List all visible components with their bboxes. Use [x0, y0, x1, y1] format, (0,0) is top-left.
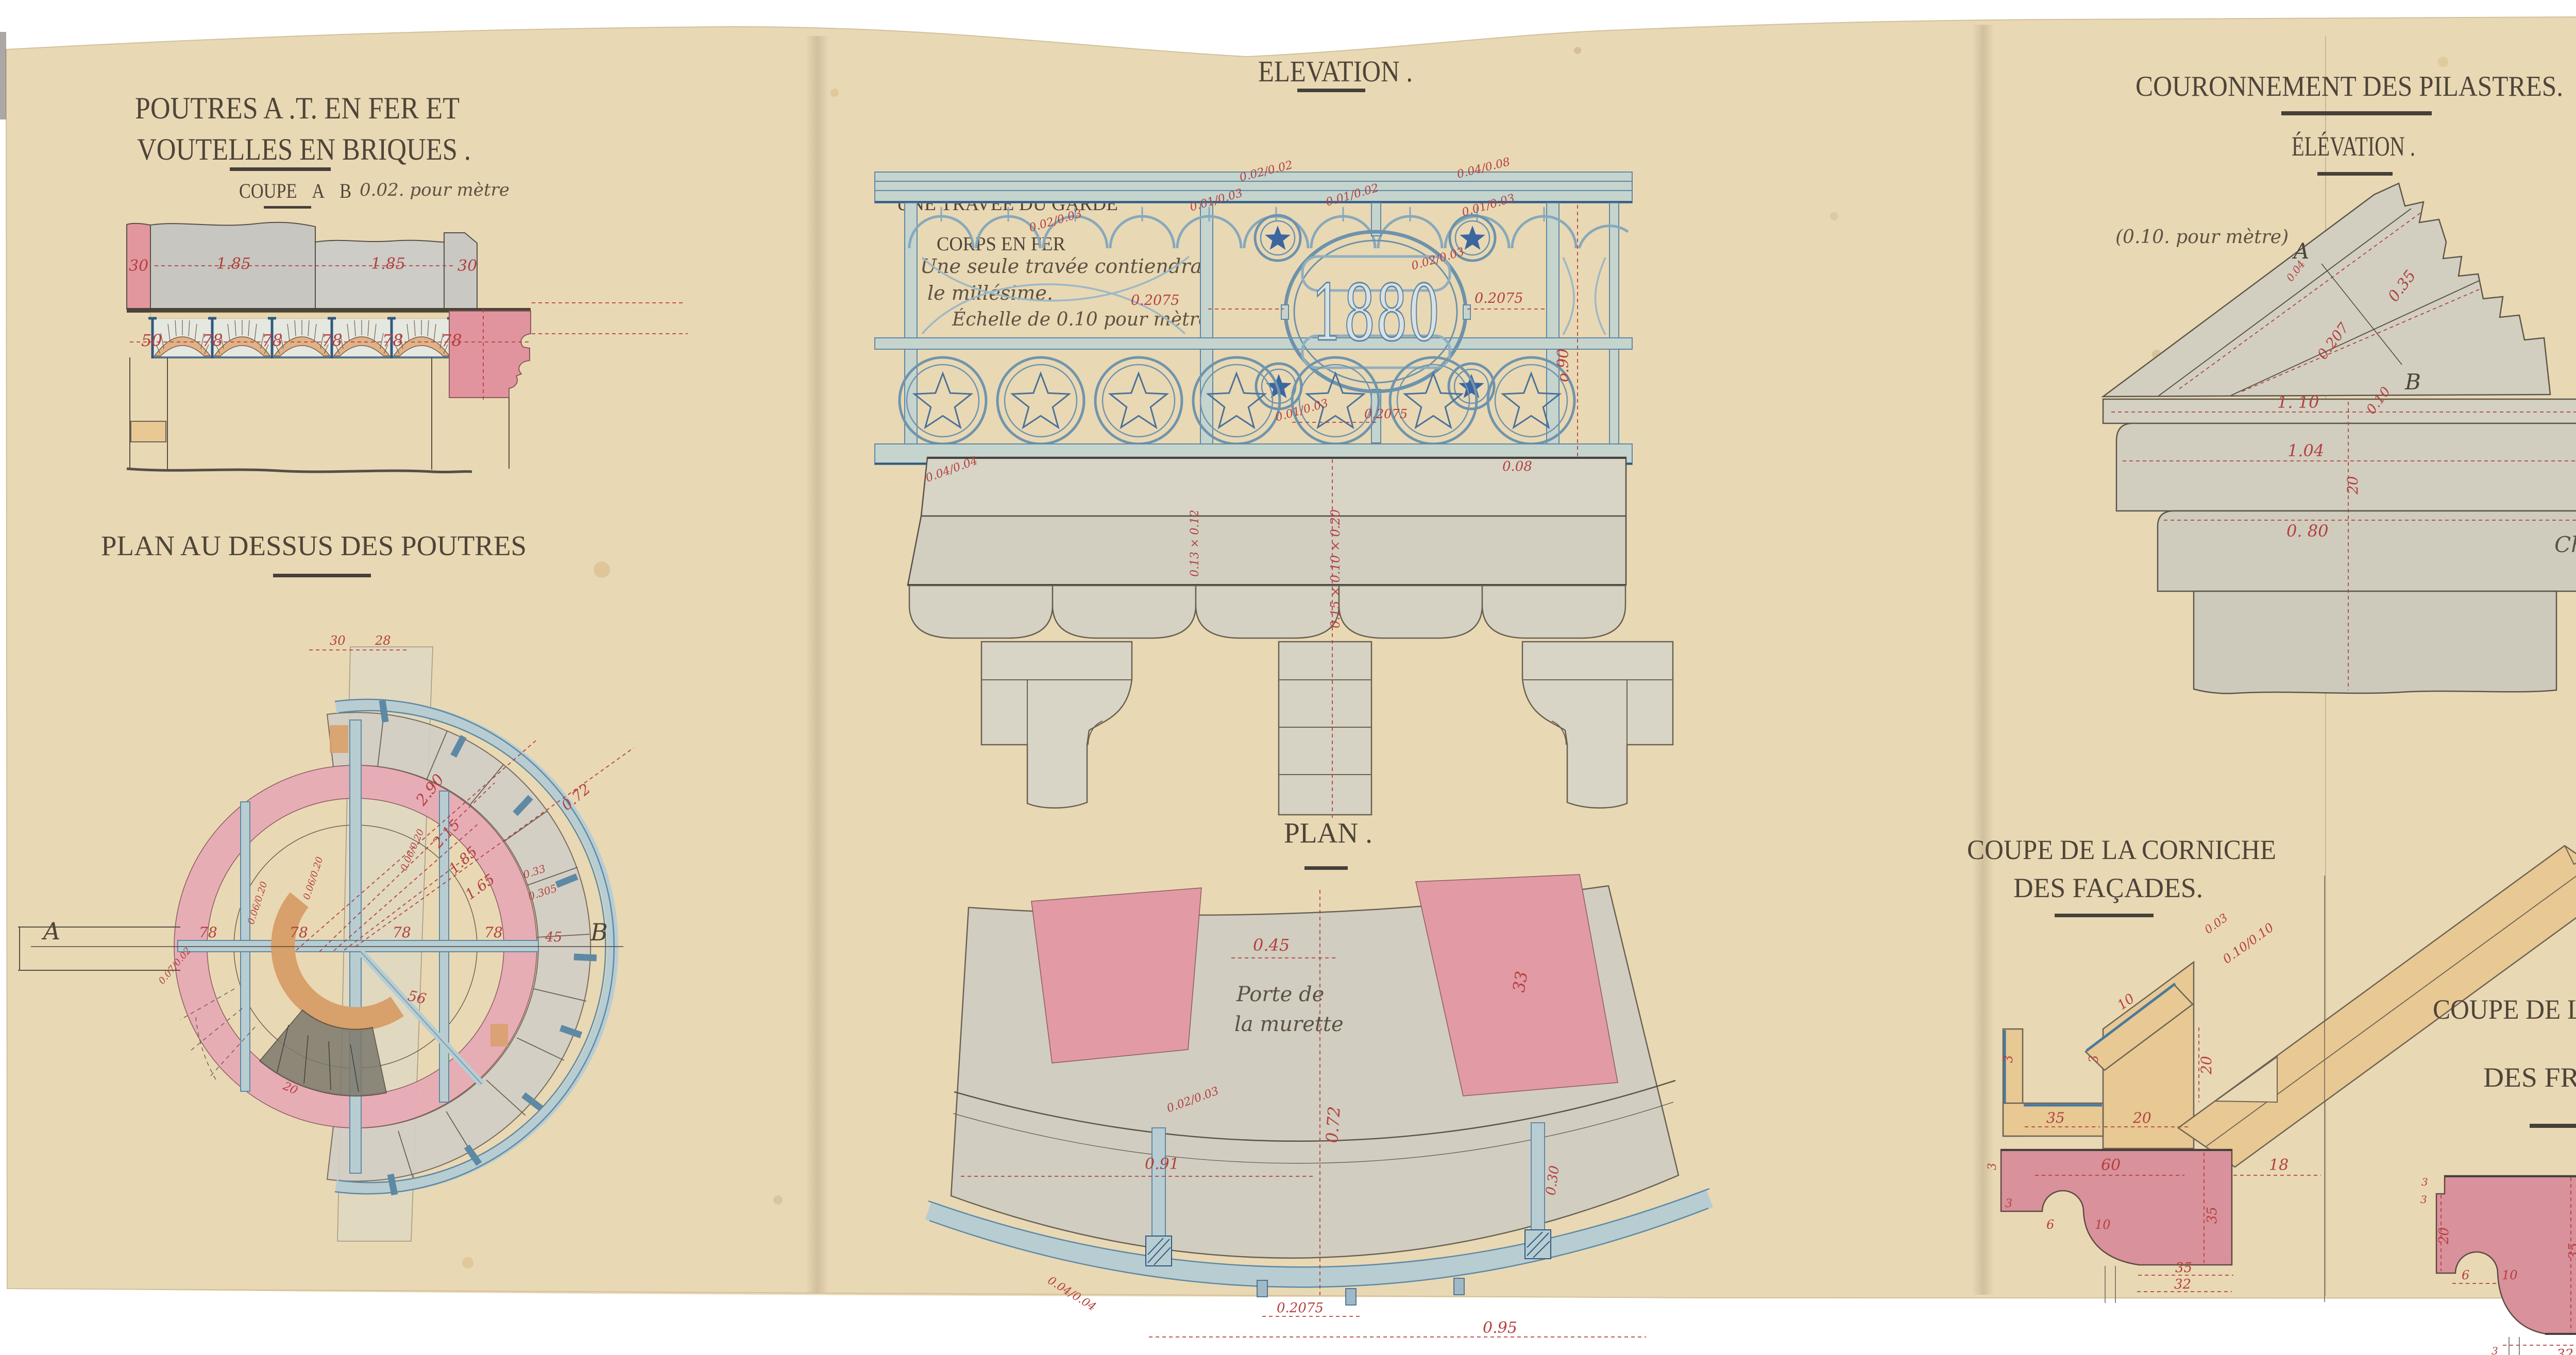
- dimension-label: 78: [441, 331, 462, 350]
- cap-band: [2103, 399, 2576, 423]
- dimension-label: 3: [1986, 1163, 1999, 1170]
- fold-crease: [805, 36, 829, 1293]
- dimension-label: 0.2075: [1475, 290, 1523, 306]
- frontons-title-line2: DES FRONTONS. A.B.: [2483, 1062, 2576, 1093]
- frontons-title-line1: COUPE DE LA CORNICHE: [2433, 994, 2576, 1025]
- title-underline: [2530, 1124, 2576, 1128]
- orange-block: [490, 1024, 508, 1047]
- cap-block: [2116, 423, 2576, 511]
- dimension-label: 78: [262, 331, 283, 350]
- facades-title-line2: DES FAÇADES.: [2013, 872, 2203, 903]
- dimension-label: 10: [2502, 1268, 2518, 1282]
- dimension-label: 78: [290, 924, 308, 941]
- dimension-label: 35: [2566, 1243, 2576, 1260]
- elevation-title: ELEVATION .: [1258, 55, 1413, 88]
- wood-block: [131, 421, 166, 442]
- dimension-label: 10: [2095, 1217, 2111, 1232]
- dimension-label: 3: [2005, 1197, 2012, 1210]
- label-b: B: [2404, 369, 2421, 395]
- dimension-label: 0.13 × 0.12: [1189, 510, 1201, 577]
- dimension-label: 20: [2344, 476, 2361, 495]
- plan-title: PLAN .: [1284, 817, 1372, 849]
- dimension-label: 32: [2556, 1347, 2573, 1355]
- dimension-label: 78: [393, 924, 411, 941]
- title-underline: [1304, 866, 1348, 870]
- label-a: A: [2292, 238, 2309, 264]
- cornice-stone-pink: [2436, 1176, 2576, 1334]
- hand-note-3: Échelle de 0.10 pour mètre: [952, 308, 1209, 330]
- dimension-label: 6: [2046, 1217, 2054, 1232]
- couronnement-title: COURONNEMENT DES PILASTRES.: [2136, 71, 2563, 102]
- orange-block: [330, 725, 348, 753]
- poutres-subtitle: COUPE A B: [239, 179, 351, 202]
- dimension-label: 30: [457, 257, 477, 275]
- dimension-label: 0.45: [1253, 935, 1290, 955]
- dimension-label: 78: [202, 331, 223, 350]
- dimension-label: 78: [199, 924, 217, 941]
- dimension-label: 3: [2420, 1193, 2427, 1206]
- poutres-scale-note: 0.02. pour mètre: [360, 180, 510, 200]
- dimension-label: 30: [129, 257, 148, 275]
- subtitle-underline: [2317, 172, 2393, 176]
- title-underline: [2281, 111, 2432, 115]
- dimension-label: 0.95: [1483, 1319, 1517, 1337]
- dimension-label: 3: [2421, 1176, 2428, 1188]
- shaft-block: [2194, 591, 2556, 694]
- base-block: [2158, 511, 2576, 591]
- dimension-label: 32: [2174, 1277, 2191, 1292]
- dimension-label: 20: [2436, 1227, 2452, 1245]
- frontons-cornice-drawing: [2436, 1176, 2576, 1355]
- title-underline: [273, 574, 371, 577]
- fold-crease: [1972, 25, 1994, 1295]
- dimension-label: 78: [484, 924, 503, 941]
- dimension-label: 1. 10: [2277, 392, 2319, 412]
- dimension-label: 0.2075: [1364, 407, 1408, 421]
- plan-poutres-title: PLAN AU DESSUS DES POUTRES: [101, 530, 527, 561]
- dimension-label: 3: [2492, 1345, 2498, 1355]
- axis-label-a: A: [41, 917, 60, 945]
- dimension-label: 78: [382, 331, 403, 350]
- architectural-plate-drawing: POUTRES A .T. EN FER ET VOUTELLES EN BRI…: [0, 0, 2576, 1355]
- dimension-label: 18: [2269, 1156, 2289, 1174]
- dimension-label: 20: [2198, 1056, 2215, 1075]
- dimension-label: 3: [2001, 1055, 2015, 1063]
- title-underline: [230, 167, 331, 171]
- dimension-label: 1.85: [216, 255, 251, 273]
- dimension-label: 33: [1509, 970, 1531, 994]
- title-underline: [2055, 914, 2154, 917]
- chambranles-note-line1: Chambranles des portes: [2554, 532, 2576, 557]
- couronnement-scale-note: (0.10. pour mètre): [2115, 227, 2289, 248]
- dimension-label: 0.91: [1145, 1155, 1179, 1173]
- poutres-title-line2: VOUTELLES EN BRIQUES .: [137, 132, 471, 166]
- dimension-label: o.90: [1554, 349, 1572, 382]
- poutres-title-line1: POUTRES A .T. EN FER ET: [135, 91, 460, 125]
- hand-note-1: Une seule travée contiendra: [920, 255, 1202, 278]
- hand-note: Porte de: [1236, 983, 1324, 1006]
- dimension-label: 0.2075: [1277, 1300, 1324, 1316]
- dimension-label: 28: [375, 633, 391, 648]
- dimension-label: 0.2075: [1131, 293, 1179, 308]
- dimension-label: 0. 80: [2286, 521, 2328, 541]
- dimension-label: 50: [141, 331, 162, 350]
- dimension-label: 60: [2101, 1156, 2121, 1174]
- dimension-label: 1.85: [371, 255, 405, 273]
- dimension-label: 0.72: [1322, 1106, 1344, 1144]
- dimension-label: 3: [2087, 1055, 2101, 1063]
- dimension-label: 30: [330, 633, 346, 648]
- dimension-label: 35: [2205, 1207, 2220, 1224]
- dimension-label: 0.15 × 0.10 × 0.20: [1328, 509, 1343, 628]
- photo-edge-shadow: [0, 32, 6, 119]
- axis-label-b: B: [590, 918, 608, 946]
- subtitle-underline: [264, 206, 311, 209]
- title-underline: [1297, 89, 1365, 92]
- hand-note: la murette: [1234, 1013, 1344, 1036]
- dimension-label: 78: [321, 331, 343, 350]
- couronnement-subtitle: ÉLÉVATION .: [2292, 131, 2415, 162]
- dimension-label: 6: [2462, 1268, 2469, 1282]
- facades-title-line1: COUPE DE LA CORNICHE: [1967, 834, 2276, 865]
- pink-pier-left: [1031, 888, 1201, 1063]
- dimension-label: 0.08: [1502, 459, 1532, 474]
- dimension-label: 20: [2132, 1109, 2151, 1126]
- dimension-label: 35: [2175, 1260, 2192, 1276]
- center-pier: [1279, 642, 1371, 815]
- dimension-label: 35: [2046, 1109, 2065, 1126]
- mid-bar: [875, 338, 1632, 349]
- dimension-label: 45: [545, 930, 562, 945]
- dimension-label: 1.04: [2287, 441, 2324, 460]
- medallion-year: 1880: [1311, 269, 1440, 358]
